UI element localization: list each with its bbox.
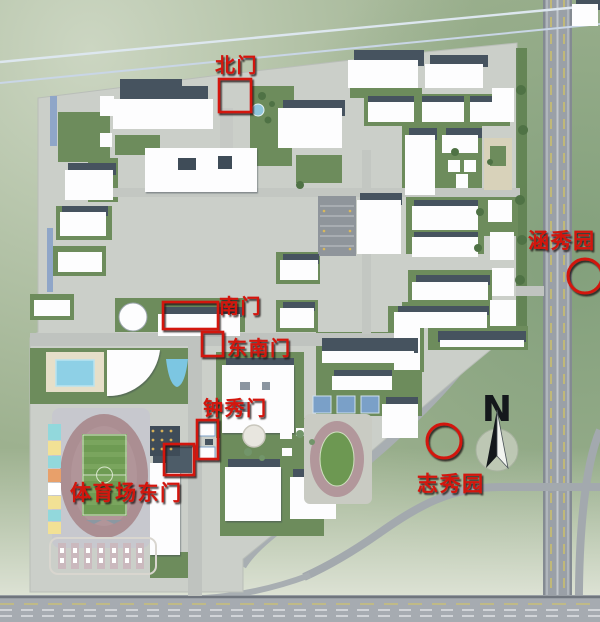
stadium (52, 408, 150, 548)
building (280, 260, 318, 280)
campus-map: 北门 南门 东南门 钟秀门 体育场东门 涵秀园 志秀园 N (0, 0, 600, 622)
building (405, 135, 435, 195)
building (113, 99, 213, 129)
small-track (304, 414, 372, 504)
building (382, 404, 418, 438)
building (145, 148, 257, 192)
hanxiu-garden-label: 涵秀园 (528, 229, 596, 253)
building (278, 108, 342, 148)
north-gate-label: 北门 (215, 53, 258, 77)
building (412, 237, 478, 257)
building (572, 4, 598, 26)
building (348, 60, 418, 88)
south-gate-label: 南门 (219, 294, 262, 318)
southeast-gate-label: 东南门 (227, 336, 292, 360)
building (65, 170, 113, 200)
zhongxiu-gate-label: 钟秀门 (203, 396, 268, 420)
building (60, 212, 106, 236)
building (225, 467, 281, 521)
stadium-east-gate-label: 体育场东门 (70, 481, 183, 505)
building (357, 200, 401, 254)
building (442, 135, 478, 153)
building (425, 64, 483, 88)
building (412, 206, 478, 230)
building (413, 312, 487, 328)
fountain-pond (252, 104, 264, 116)
building (368, 102, 414, 122)
zhixiu-garden-label: 志秀园 (417, 472, 485, 496)
fountain-plaza (243, 425, 265, 447)
building (412, 282, 488, 300)
swimming-pool (46, 352, 104, 392)
building (422, 102, 464, 122)
road-south (0, 595, 600, 622)
campus-map-svg: 北门 南门 东南门 钟秀门 体育场东门 涵秀园 志秀园 N (0, 0, 600, 622)
central-plaza (318, 196, 356, 256)
round-building (119, 303, 147, 331)
sports-courts (313, 396, 379, 413)
building (280, 308, 314, 328)
building (58, 252, 102, 272)
highway-east (543, 0, 572, 622)
bike-sheds (50, 538, 156, 574)
